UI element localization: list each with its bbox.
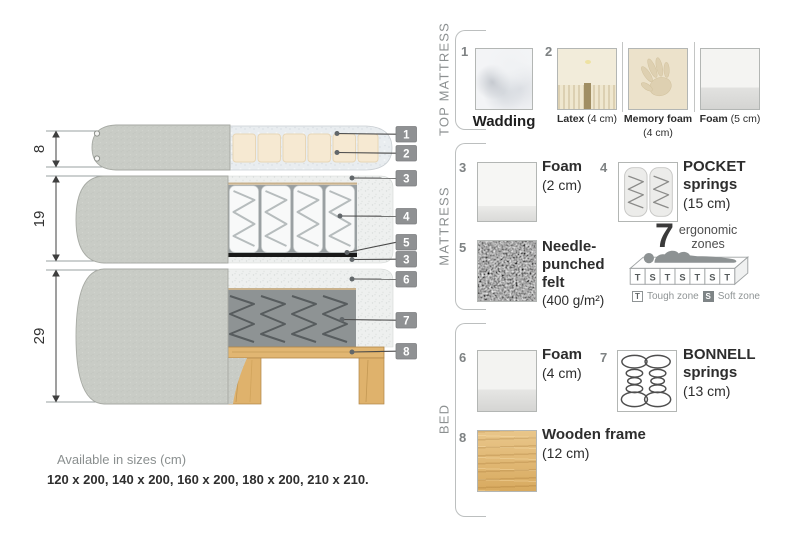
ergonomic-word1: ergonomic [679,223,737,237]
ergonomic-zones-graphic: T S T S T S T [628,246,750,288]
svg-text:3: 3 [403,173,409,185]
svg-text:S: S [709,273,715,283]
foam-5cm-image [700,48,760,110]
svg-text:T: T [635,273,641,283]
latex-size: (4 cm) [587,113,617,125]
pocket-springs-size: (15 cm) [683,195,765,213]
divider [694,42,695,112]
dimension-arrows [53,132,59,402]
top-mattress-cover [92,125,230,170]
item-number-8: 8 [459,430,466,445]
foam-5cm-size: (5 cm) [731,113,761,125]
cover-button [94,156,99,161]
wadding-image [475,48,533,110]
svg-text:6: 6 [403,274,409,286]
latex-caption: Latex (4 cm) [547,113,627,127]
foam-4cm-size: (4 cm) [542,365,612,383]
section-label-mattress: MATTRESS [437,186,452,265]
foam-2cm-size: (2 cm) [542,177,612,195]
mattress-layer [76,176,393,263]
svg-text:T: T [695,273,701,283]
felt-size: (400 g/m²) [542,293,622,310]
zone-legend: T Tough zone S Soft zone [632,291,760,302]
hand-imprint-icon [633,53,678,101]
svg-text:3: 3 [403,254,409,266]
latex-name: Latex [557,113,584,125]
needle-punched-felt-image [477,240,537,302]
bonnell-springs-name: BONNELL springs [683,346,771,382]
bed-base-layer [76,269,393,404]
svg-text:8: 8 [403,346,410,358]
wooden-frame-name: Wooden frame [542,426,692,444]
item-number-3: 3 [459,160,466,175]
section-label-top-mattress: TOP MATTRESS [437,22,452,136]
bonnell-springs-icon [621,355,670,406]
item-number-5: 5 [459,240,466,255]
bonnell-springs-image [617,350,677,412]
foam-5cm-caption: Foam (5 cm) [690,113,770,127]
memory-foam-image [628,48,688,110]
svg-text:T: T [724,273,730,283]
mattress-cover [76,176,228,263]
item-number-1: 1 [461,44,468,59]
sizes-list: 120 x 200, 140 x 200, 160 x 200, 180 x 2… [47,472,369,487]
foam-4cm-image [477,350,537,412]
svg-text:S: S [679,273,685,283]
pocket-springs-label: POCKET springs (15 cm) [683,158,765,213]
mattress-infographic: 8 19 29 [0,0,800,533]
svg-text:S: S [649,273,655,283]
latex-image [557,48,617,110]
wooden-frame-cutaway [228,347,384,404]
felt-label: Needle-punched felt (400 g/m²) [542,238,622,310]
dim-mattress: 19 [31,211,48,228]
foam-2cm-image [477,162,537,222]
latex-notch [584,83,591,109]
memory-foam-name: Memory foam [624,113,692,125]
item-number-2: 2 [545,44,552,59]
item-number-7: 7 [600,350,607,365]
soft-zone-icon: S [703,291,714,302]
foam-5cm-name: Foam [700,113,728,125]
wooden-frame-image [477,430,537,492]
divider [622,42,623,112]
svg-text:4: 4 [403,211,410,223]
item-number-6: 6 [459,350,466,365]
pocket-springs-icon [625,168,673,217]
item-number-4: 4 [600,160,607,175]
top-mattress-layer [92,125,392,170]
latex-fleck [585,60,591,64]
cover-button [94,131,99,136]
wooden-frame-size: (12 cm) [542,445,692,463]
dim-top-mattress: 8 [31,145,48,153]
felt-line [228,253,357,257]
soft-zone-label: Soft zone [718,291,760,302]
dim-bed: 29 [31,328,48,345]
tough-zone-icon: T [632,291,643,302]
pocket-springs-image [618,162,678,222]
bonnell-springs-label: BONNELL springs (13 cm) [683,346,771,401]
pocket-springs-name: POCKET springs [683,158,765,194]
wooden-frame-label: Wooden frame (12 cm) [542,426,692,463]
section-label-bed: BED [437,404,452,434]
memory-foam-size: (4 cm) [643,127,673,139]
wadding-caption: Wadding [464,112,544,132]
bed-cover [76,269,228,404]
svg-text:2: 2 [403,148,409,160]
svg-text:5: 5 [403,237,410,249]
svg-text:7: 7 [403,315,409,327]
felt-name: Needle-punched felt [542,238,622,292]
svg-text:1: 1 [403,129,410,141]
bonnell-springs-size: (13 cm) [683,383,771,401]
sizes-heading: Available in sizes (cm) [57,452,186,467]
memory-foam-caption: Memory foam (4 cm) [623,113,693,140]
svg-text:T: T [665,273,671,283]
tough-zone-label: Tough zone [647,291,699,302]
